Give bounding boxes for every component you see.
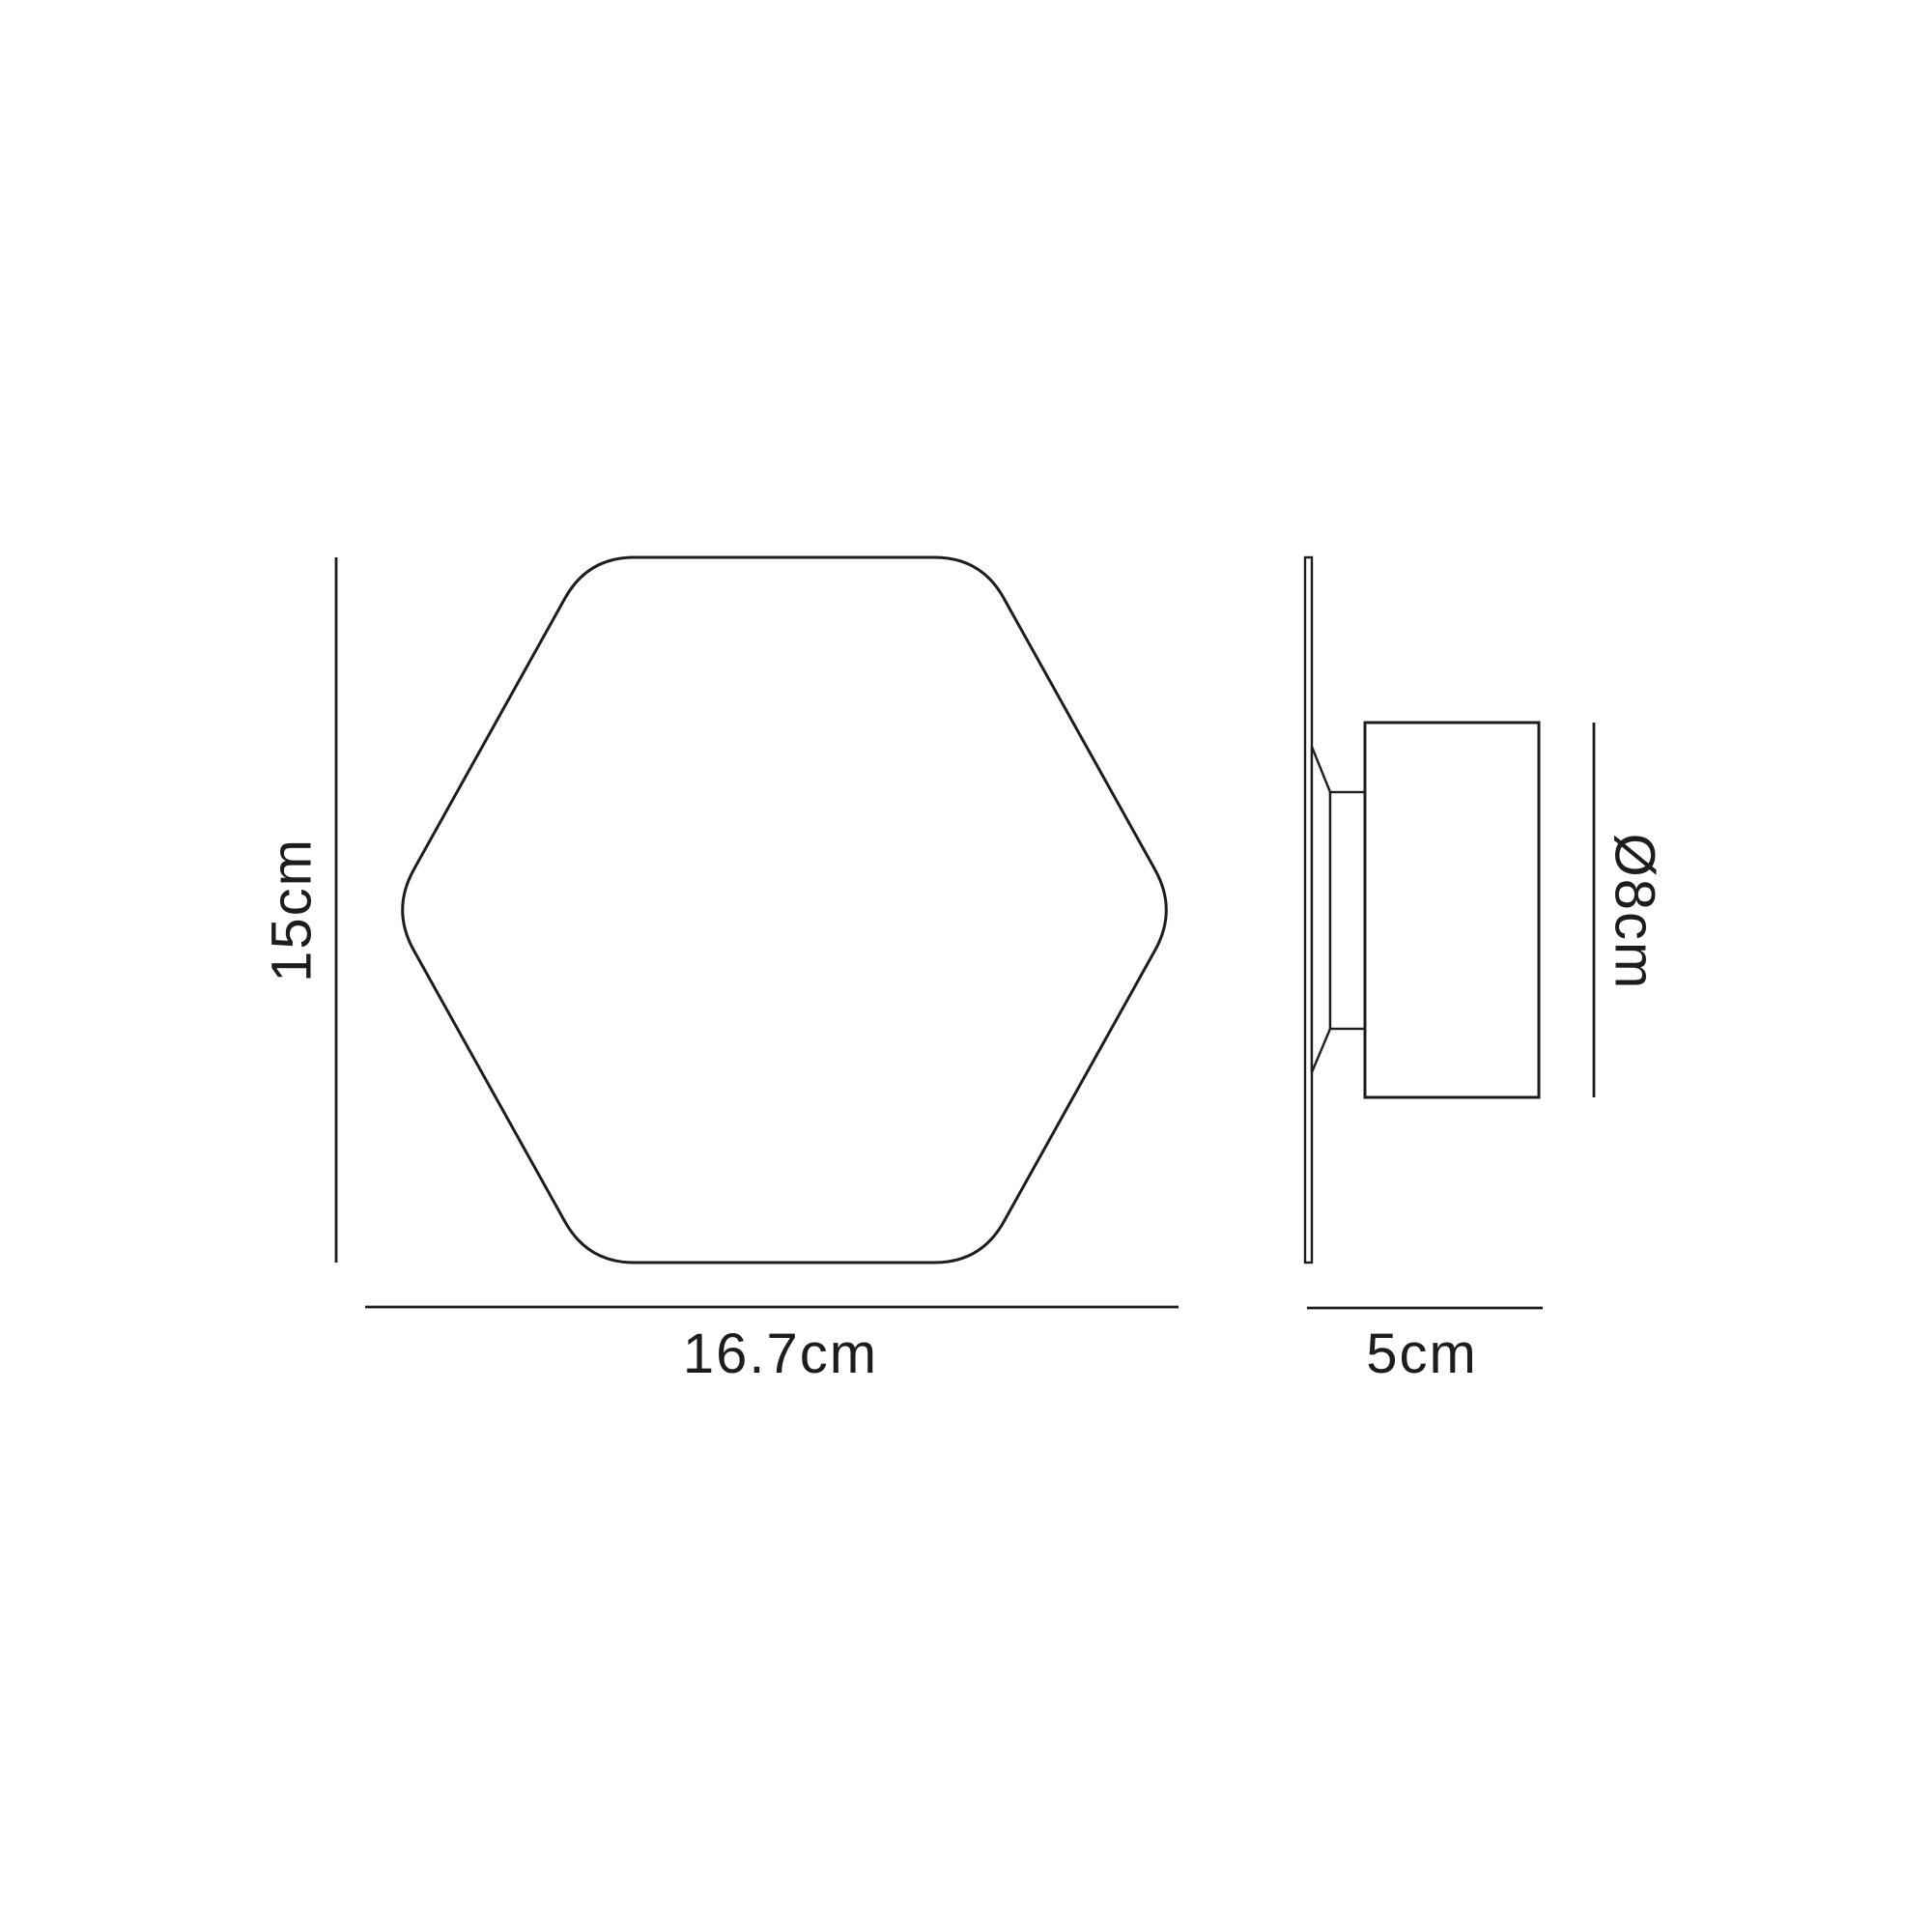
diameter-dimension-label: Ø8cm (1604, 834, 1666, 991)
dimension-drawing: 15cm 16.7cm Ø8cm 5cm (0, 0, 1932, 1932)
mount-taper-profile (1312, 747, 1330, 1072)
front-view: 15cm 16.7cm (261, 557, 1179, 1385)
cylinder-body-profile (1365, 723, 1539, 1097)
width-dimension-label: 16.7cm (683, 1322, 878, 1385)
hexagon-shade-outline (403, 557, 1167, 1263)
mount-neck-profile (1330, 792, 1365, 1029)
height-dimension-label: 15cm (261, 838, 324, 982)
depth-dimension-label: 5cm (1366, 1322, 1478, 1385)
side-view: Ø8cm 5cm (1305, 557, 1666, 1385)
